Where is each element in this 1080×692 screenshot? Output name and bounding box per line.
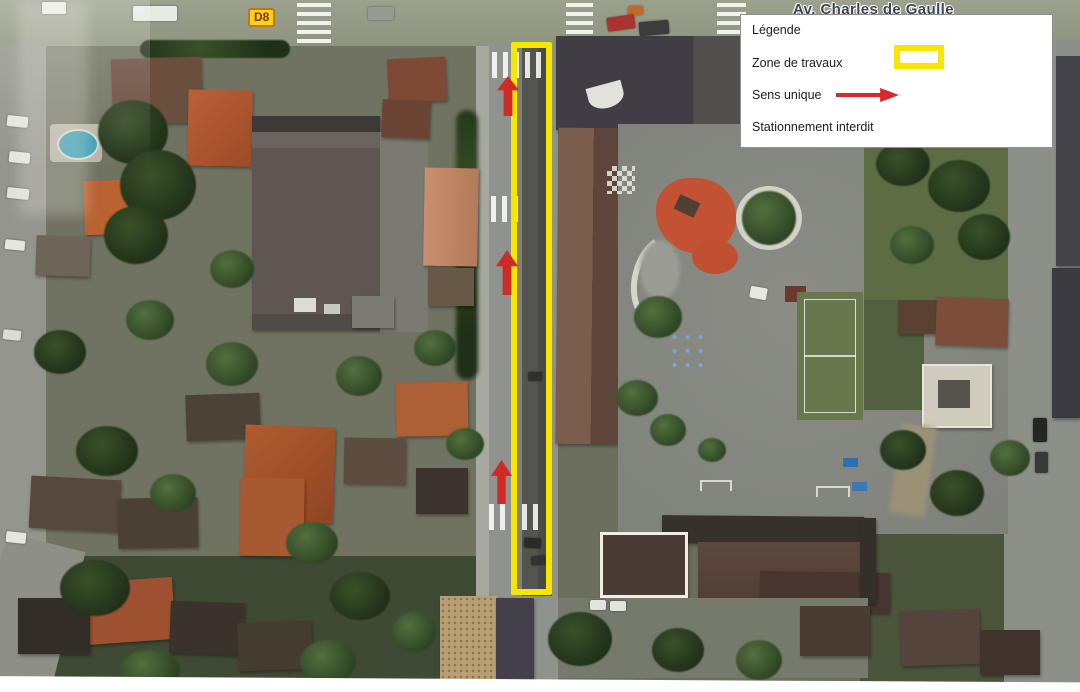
tree (150, 474, 196, 512)
tree (300, 640, 356, 684)
goal-frame (700, 480, 732, 491)
work-zone-rectangle (511, 42, 552, 595)
parked-car (5, 531, 26, 544)
house-roof (428, 268, 474, 306)
house-roof (169, 601, 245, 656)
house-roof (387, 57, 447, 104)
parked-car (1035, 452, 1048, 473)
school-building-south (662, 515, 864, 545)
parked-car (610, 601, 626, 611)
construction-courtyard (938, 380, 970, 408)
tree (616, 380, 658, 416)
goal-frame (816, 486, 850, 497)
crosswalk (297, 3, 331, 43)
tree (880, 430, 926, 470)
tree (126, 300, 174, 340)
tree (958, 214, 1010, 260)
tree (34, 330, 86, 374)
house-roof (898, 300, 940, 334)
parked-car (590, 600, 606, 610)
tree (742, 191, 796, 245)
tree (392, 612, 436, 652)
tree (548, 612, 612, 666)
building-roof (1052, 268, 1080, 418)
house-roof (935, 297, 1009, 347)
legend-title: Légende (752, 23, 801, 37)
tree (206, 342, 258, 386)
tree (210, 250, 254, 288)
tree (876, 142, 930, 186)
parked-car (3, 329, 22, 341)
tree (634, 296, 682, 338)
house-roof (423, 168, 479, 267)
parked-car (1033, 418, 1047, 442)
house-roof (381, 99, 430, 139)
blue-mat (843, 458, 858, 467)
tree (990, 440, 1030, 476)
scan-light-wash (18, 0, 88, 215)
blue-mat (852, 482, 867, 491)
tree (414, 330, 456, 366)
tree (76, 426, 138, 476)
building-roof (496, 598, 534, 680)
tree (698, 438, 726, 462)
house-roof (187, 89, 252, 166)
legend-item-label: Stationnement interdit (752, 120, 874, 134)
tree (736, 640, 782, 680)
tree (652, 628, 704, 672)
building-roof (1056, 56, 1080, 266)
building-roof (860, 518, 876, 604)
work-zone-swatch-icon (894, 45, 944, 69)
tree (286, 522, 338, 564)
roadworks-plan: D8 Av. Charles de Gaulle Légende Zone de… (0, 0, 1080, 692)
gravel-roof-building (440, 596, 498, 680)
sand-area (640, 240, 680, 300)
field-lines (804, 355, 856, 357)
house-roof (35, 235, 90, 277)
tree (650, 414, 686, 446)
flat-roof-building (600, 532, 688, 598)
vehicle (638, 20, 669, 37)
checkerboard-marking (607, 166, 635, 194)
legend-item-label: Sens unique (752, 88, 822, 102)
tree (930, 470, 984, 516)
hedge (140, 40, 290, 58)
house-roof (29, 476, 122, 533)
one-way-arrow-swatch-icon (836, 88, 899, 102)
vehicle (368, 7, 394, 20)
tree (330, 572, 390, 620)
house-roof (800, 606, 870, 656)
tree (336, 356, 382, 396)
shed-roof (352, 296, 394, 328)
road-sign-d8: D8 (248, 8, 275, 27)
legend-item-label: Zone de travaux (752, 56, 842, 70)
house-roof (344, 437, 407, 484)
tree (890, 226, 934, 264)
rooftop-detail (294, 298, 316, 312)
house-roof (899, 609, 981, 667)
tree (60, 560, 130, 616)
parked-car (5, 239, 26, 251)
tree (928, 160, 990, 212)
house-roof (980, 630, 1040, 675)
legend-panel: Légende Zone de travaux Sens unique Stat… (740, 14, 1053, 148)
rooftop-detail (324, 304, 340, 314)
house-roof (416, 468, 468, 514)
court-markings (668, 330, 708, 372)
tree (446, 428, 484, 460)
